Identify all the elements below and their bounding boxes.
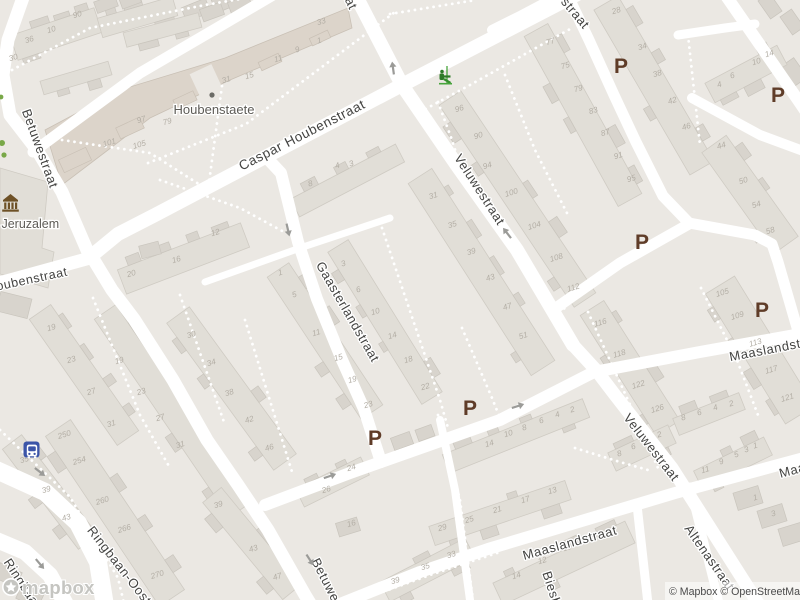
svg-text:mapbox: mapbox	[22, 577, 95, 598]
svg-text:P: P	[635, 231, 649, 254]
svg-text:Houbenstaete: Houbenstaete	[174, 102, 255, 117]
svg-text:Huis Jeruzalem: Huis Jeruzalem	[0, 217, 59, 231]
svg-text:P: P	[771, 84, 785, 107]
svg-text:P: P	[755, 299, 769, 322]
svg-text:© Mapbox © OpenStreetMap: © Mapbox © OpenStreetMap	[669, 586, 800, 598]
svg-text:P: P	[368, 427, 382, 450]
svg-text:P: P	[614, 55, 628, 78]
svg-text:P: P	[463, 397, 477, 420]
